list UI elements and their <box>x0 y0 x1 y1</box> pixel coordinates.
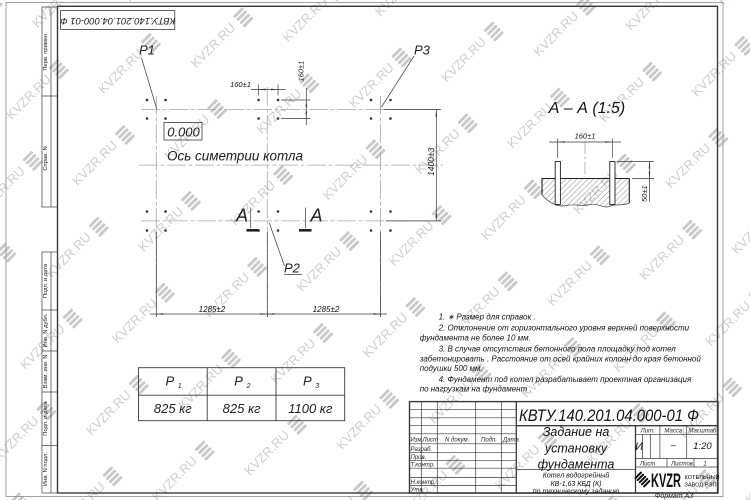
svg-text:Подп. и дата: Подп. и дата <box>43 263 49 298</box>
svg-text:КВТУ.140.201.04.000-01 Ф: КВТУ.140.201.04.000-01 Ф <box>60 15 175 26</box>
svg-text:KVZR.RU: KVZR.RU <box>69 137 120 188</box>
svg-text:KVZR.RU: KVZR.RU <box>333 401 384 452</box>
svg-text:KVZR.RU: KVZR.RU <box>320 152 371 203</box>
svg-text:KVZR.RU: KVZR.RU <box>702 298 750 349</box>
svg-text:KVZR.RU: KVZR.RU <box>0 163 28 214</box>
svg-text:KVZR.RU: KVZR.RU <box>478 192 529 243</box>
svg-text:825 кг: 825 кг <box>223 401 261 416</box>
svg-text:А: А <box>235 206 248 226</box>
svg-text:1:20: 1:20 <box>693 441 712 452</box>
svg-text:KVZR.RU: KVZR.RU <box>135 203 186 254</box>
svg-text:KVZR.RU: KVZR.RU <box>241 427 292 478</box>
svg-text:фундамента не более 10 мм.: фундамента не более 10 мм. <box>420 334 531 343</box>
svg-text:3: 3 <box>315 383 319 390</box>
svg-text:1. ∗ Размер для справок .: 1. ∗ Размер для справок . <box>439 313 536 322</box>
svg-text:Утв.: Утв. <box>410 488 425 494</box>
svg-text:КВТУ.140.201.04.000-01 Ф: КВТУ.140.201.04.000-01 Ф <box>519 407 699 425</box>
svg-text:Н.контр.: Н.контр. <box>411 480 436 486</box>
svg-text:по нагрузкам на фундамент .: по нагрузкам на фундамент . <box>420 385 532 394</box>
svg-text:3. В случае отсутствия бет: 3. В случае отсутствия бетонного пола пл… <box>439 344 677 353</box>
svg-text:1285±2: 1285±2 <box>313 305 340 314</box>
svg-text:Разраб.: Разраб. <box>411 447 433 453</box>
svg-text:по техническому заданию: по техническому заданию <box>533 488 620 496</box>
svg-text:KVZR.RU: KVZR.RU <box>636 232 687 283</box>
svg-text:KVZR.RU: KVZR.RU <box>742 456 750 500</box>
svg-text:KVZR.RU: KVZR.RU <box>254 86 305 137</box>
svg-text:50±1: 50±1 <box>640 185 649 202</box>
svg-text:P: P <box>165 374 174 389</box>
svg-text:1100 кг: 1100 кг <box>288 401 333 416</box>
svg-text:установку: установку <box>544 442 608 456</box>
svg-text:1400±3: 1400±3 <box>426 147 436 176</box>
svg-text:Лист: Лист <box>639 461 655 467</box>
svg-text:KVZR.RU: KVZR.RU <box>438 34 489 85</box>
svg-text:P2: P2 <box>284 261 301 276</box>
svg-text:А: А <box>310 206 323 226</box>
svg-text:KVZR.RU: KVZR.RU <box>187 20 238 71</box>
svg-text:KVZR.RU: KVZR.RU <box>386 218 437 269</box>
svg-text:Подп. и дата: Подп. и дата <box>43 401 49 436</box>
svg-text:2. Отклонение от горизонтал: 2. Отклонение от горизонтального уровня … <box>438 324 690 333</box>
svg-text:Изм.: Изм. <box>411 438 424 444</box>
svg-text:KVZR.RU: KVZR.RU <box>504 100 555 151</box>
svg-text:И: И <box>635 441 643 453</box>
svg-text:160±1: 160±1 <box>230 80 251 89</box>
svg-text:KVZR.RU: KVZR.RU <box>360 310 411 361</box>
svg-text:P: P <box>234 374 243 389</box>
svg-text:КОТЕЛЬНЫЙ: КОТЕЛЬНЫЙ <box>685 473 720 481</box>
svg-text:KVZR: KVZR <box>651 471 681 492</box>
svg-text:KVZR.RU: KVZR.RU <box>293 244 344 295</box>
svg-text:P: P <box>303 374 312 389</box>
svg-text:1285±2: 1285±2 <box>199 305 226 314</box>
svg-text:Ось симетрии котла: Ось симетрии котла <box>167 149 303 164</box>
svg-text:P1: P1 <box>139 43 155 58</box>
svg-text:KVZR.RU: KVZR.RU <box>43 229 94 280</box>
svg-text:KVZR.RU: KVZR.RU <box>530 8 581 59</box>
svg-text:подушки 500 мм.: подушки 500 мм. <box>420 364 483 373</box>
svg-text:KVZR.RU: KVZR.RU <box>689 48 740 99</box>
svg-text:Котел водогрейный: Котел водогрейный <box>543 472 610 480</box>
svg-text:KVZR.RU: KVZR.RU <box>728 206 750 257</box>
svg-text:Инв. N дубл.: Инв. N дубл. <box>43 313 49 347</box>
svg-text:Т.контр.: Т.контр. <box>411 463 435 469</box>
svg-text:фундамента: фундамента <box>538 458 615 472</box>
svg-text:KVZR.RU: KVZR.RU <box>3 71 54 122</box>
svg-text:KVZR.RU: KVZR.RU <box>622 0 673 33</box>
svg-text:2: 2 <box>246 383 251 390</box>
svg-text:KVZR.RU: KVZR.RU <box>346 60 397 111</box>
svg-text:KVZR.RU: KVZR.RU <box>412 126 463 177</box>
svg-text:KVZR.RU: KVZR.RU <box>662 140 713 191</box>
svg-text:KVZR.RU: KVZR.RU <box>715 0 750 7</box>
svg-text:забетонировать . Расстояние: забетонировать . Расстояние от осей край… <box>419 354 702 363</box>
svg-text:Инв. N подл.: Инв. N подл. <box>43 452 49 486</box>
svg-text:Пров.: Пров. <box>411 455 427 461</box>
svg-text:Масса: Масса <box>664 428 682 434</box>
svg-text:Формат А3: Формат А3 <box>655 493 693 500</box>
svg-text:Подп.: Подп. <box>481 438 497 444</box>
svg-text:Справ. N: Справ. N <box>43 146 49 170</box>
svg-text:KVZR.RU: KVZR.RU <box>83 387 134 438</box>
svg-text:Дата: Дата <box>502 438 519 444</box>
svg-text:Задание на: Задание на <box>543 425 610 439</box>
svg-text:KVZR.RU: KVZR.RU <box>109 295 160 346</box>
svg-text:–: – <box>670 440 677 450</box>
svg-text:N докум.: N докум. <box>445 438 469 444</box>
svg-text:КВ-1,63 КБД (К): КВ-1,63 КБД (К) <box>551 481 602 488</box>
svg-text:KVZR.RU: KVZR.RU <box>492 442 543 493</box>
svg-text:ЗАВОД РЭП: ЗАВОД РЭП <box>685 483 717 489</box>
svg-text:825 кг: 825 кг <box>154 401 192 416</box>
svg-text:4. Фундамент под котел раз: 4. Фундамент под котел разрабатывает про… <box>439 375 692 384</box>
svg-text:KVZR.RU: KVZR.RU <box>0 255 2 306</box>
svg-text:Взам. инв. N: Взам. инв. N <box>43 355 49 389</box>
svg-text:160±1: 160±1 <box>575 132 596 141</box>
svg-text:Лит.: Лит. <box>640 428 655 434</box>
svg-text:P3: P3 <box>414 43 431 58</box>
svg-text:А – А (1:5): А – А (1:5) <box>548 100 625 117</box>
svg-text:Лист: Лист <box>422 438 438 444</box>
svg-text:Перв. примен.: Перв. примен. <box>43 32 49 71</box>
svg-text:KVZR.RU: KVZR.RU <box>544 258 595 309</box>
svg-text:1: 1 <box>703 461 706 467</box>
svg-text:Листов: Листов <box>670 461 693 467</box>
svg-text:1: 1 <box>178 383 182 390</box>
svg-text:0.000: 0.000 <box>167 125 200 140</box>
svg-text:Масштаб: Масштаб <box>688 428 717 434</box>
svg-text:160±1: 160±1 <box>297 61 306 82</box>
